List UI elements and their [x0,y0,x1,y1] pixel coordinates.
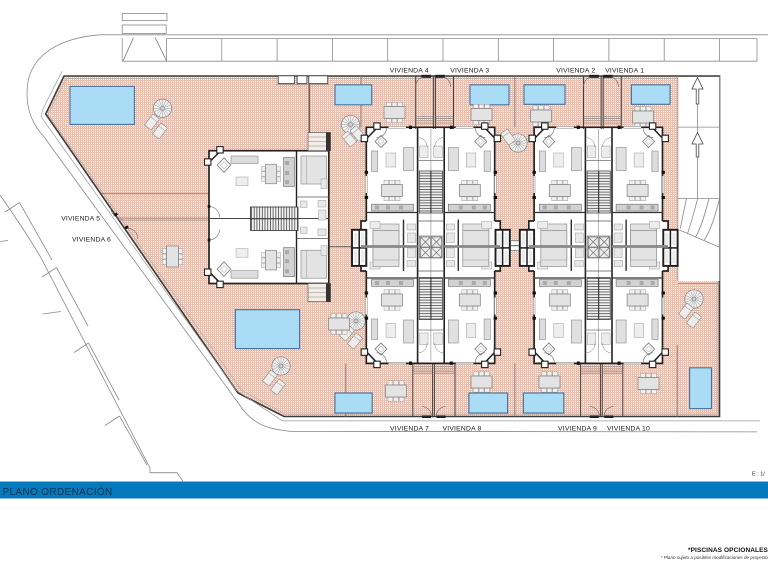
svg-text:VIVIENDA 5: VIVIENDA 5 [61,216,100,223]
svg-text:VIVIENDA 10: VIVIENDA 10 [607,425,650,432]
svg-text:VIVIENDA 7: VIVIENDA 7 [390,425,429,432]
svg-text:*PISCINAS OPCIONALES: *PISCINAS OPCIONALES [688,547,768,554]
svg-text:VIVIENDA 9: VIVIENDA 9 [558,425,597,432]
svg-text:PLANO ORDENACIÓN: PLANO ORDENACIÓN [3,485,113,498]
svg-text:VIVIENDA 8: VIVIENDA 8 [443,425,482,432]
svg-text:E : 1/: E : 1/ [752,472,765,478]
svg-text:VIVIENDA 1: VIVIENDA 1 [605,67,644,74]
svg-text:* Plano sujeto a posibles modi: * Plano sujeto a posibles modificaciones… [661,555,768,560]
svg-text:VIVIENDA 6: VIVIENDA 6 [72,237,111,244]
svg-text:VIVIENDA 3: VIVIENDA 3 [450,67,489,74]
svg-text:VIVIENDA 4: VIVIENDA 4 [390,67,429,74]
svg-text:VIVIENDA 2: VIVIENDA 2 [556,67,595,74]
